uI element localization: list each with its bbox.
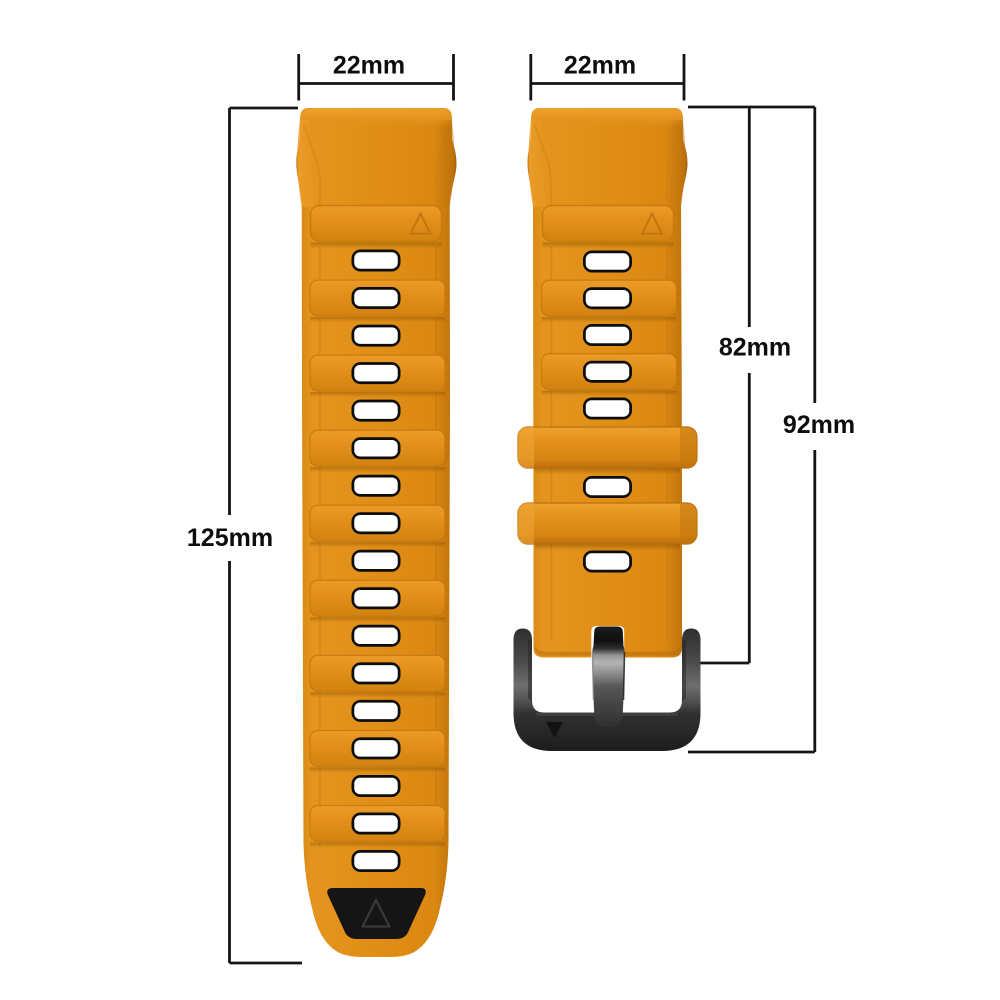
svg-text:125mm: 125mm	[187, 524, 273, 552]
svg-text:22mm: 22mm	[333, 52, 405, 80]
svg-text:82mm: 82mm	[719, 334, 791, 362]
svg-text:92mm: 92mm	[783, 411, 855, 439]
svg-text:22mm: 22mm	[564, 52, 636, 80]
